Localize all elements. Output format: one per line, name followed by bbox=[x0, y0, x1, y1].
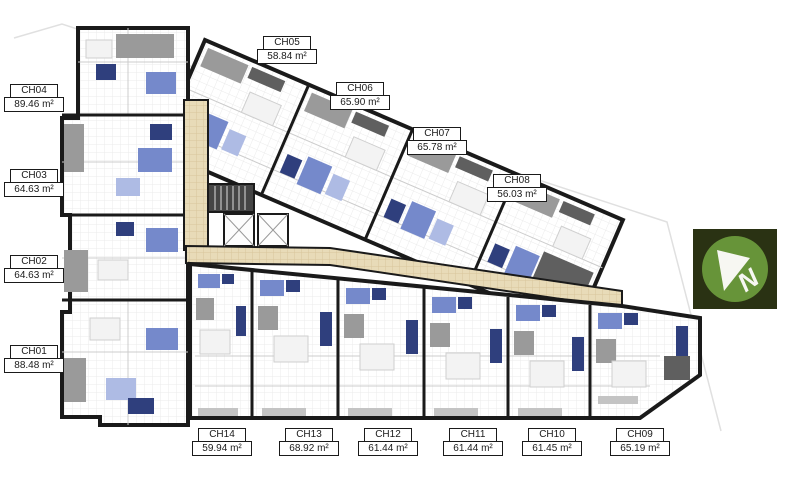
unit-label-ch02: CH02 64.63 m² bbox=[4, 255, 64, 283]
unit-name: CH04 bbox=[10, 84, 58, 98]
unit-area: 64.63 m² bbox=[4, 268, 64, 283]
unit-label-ch01: CH01 88.48 m² bbox=[4, 345, 64, 373]
unit-area: 61.44 m² bbox=[358, 441, 418, 456]
unit-name: CH05 bbox=[263, 36, 311, 50]
unit-name: CH10 bbox=[528, 428, 576, 442]
stairwell bbox=[208, 184, 254, 212]
unit-label-ch12: CH12 61.44 m² bbox=[358, 428, 418, 456]
unit-name: CH14 bbox=[198, 428, 246, 442]
unit-area: 65.19 m² bbox=[610, 441, 670, 456]
unit-area: 88.48 m² bbox=[4, 358, 64, 373]
unit-name: CH01 bbox=[10, 345, 58, 359]
floor-plan-drawing bbox=[0, 0, 794, 484]
unit-label-ch09: CH09 65.19 m² bbox=[610, 428, 670, 456]
unit-label-ch13: CH13 68.92 m² bbox=[279, 428, 339, 456]
unit-area: 56.03 m² bbox=[487, 187, 547, 202]
unit-name: CH06 bbox=[336, 82, 384, 96]
unit-area: 64.63 m² bbox=[4, 182, 64, 197]
unit-label-ch14: CH14 59.94 m² bbox=[192, 428, 252, 456]
unit-label-ch03: CH03 64.63 m² bbox=[4, 169, 64, 197]
unit-name: CH03 bbox=[10, 169, 58, 183]
unit-name: CH12 bbox=[364, 428, 412, 442]
unit-name: CH13 bbox=[285, 428, 333, 442]
unit-label-ch11: CH11 61.44 m² bbox=[443, 428, 503, 456]
unit-name: CH11 bbox=[449, 428, 497, 442]
unit-name: CH02 bbox=[10, 255, 58, 269]
unit-area: 89.46 m² bbox=[4, 97, 64, 112]
north-indicator: N bbox=[693, 229, 777, 309]
corridor-vertical bbox=[184, 100, 208, 250]
unit-area: 61.45 m² bbox=[522, 441, 582, 456]
unit-label-ch05: CH05 58.84 m² bbox=[257, 36, 317, 64]
unit-area: 65.78 m² bbox=[407, 140, 467, 155]
unit-area: 65.90 m² bbox=[330, 95, 390, 110]
unit-name: CH09 bbox=[616, 428, 664, 442]
unit-area: 58.84 m² bbox=[257, 49, 317, 64]
unit-area: 59.94 m² bbox=[192, 441, 252, 456]
unit-label-ch10: CH10 61.45 m² bbox=[522, 428, 582, 456]
unit-label-ch06: CH06 65.90 m² bbox=[330, 82, 390, 110]
unit-area: 61.44 m² bbox=[443, 441, 503, 456]
unit-name: CH07 bbox=[413, 127, 461, 141]
floor-plan-page: CH01 88.48 m² CH02 64.63 m² CH03 64.63 m… bbox=[0, 0, 794, 484]
unit-label-ch07: CH07 65.78 m² bbox=[407, 127, 467, 155]
unit-name: CH08 bbox=[493, 174, 541, 188]
unit-label-ch08: CH08 56.03 m² bbox=[487, 174, 547, 202]
unit-label-ch04: CH04 89.46 m² bbox=[4, 84, 64, 112]
left-wing bbox=[62, 28, 188, 425]
bottom-wing bbox=[190, 264, 700, 418]
unit-area: 68.92 m² bbox=[279, 441, 339, 456]
